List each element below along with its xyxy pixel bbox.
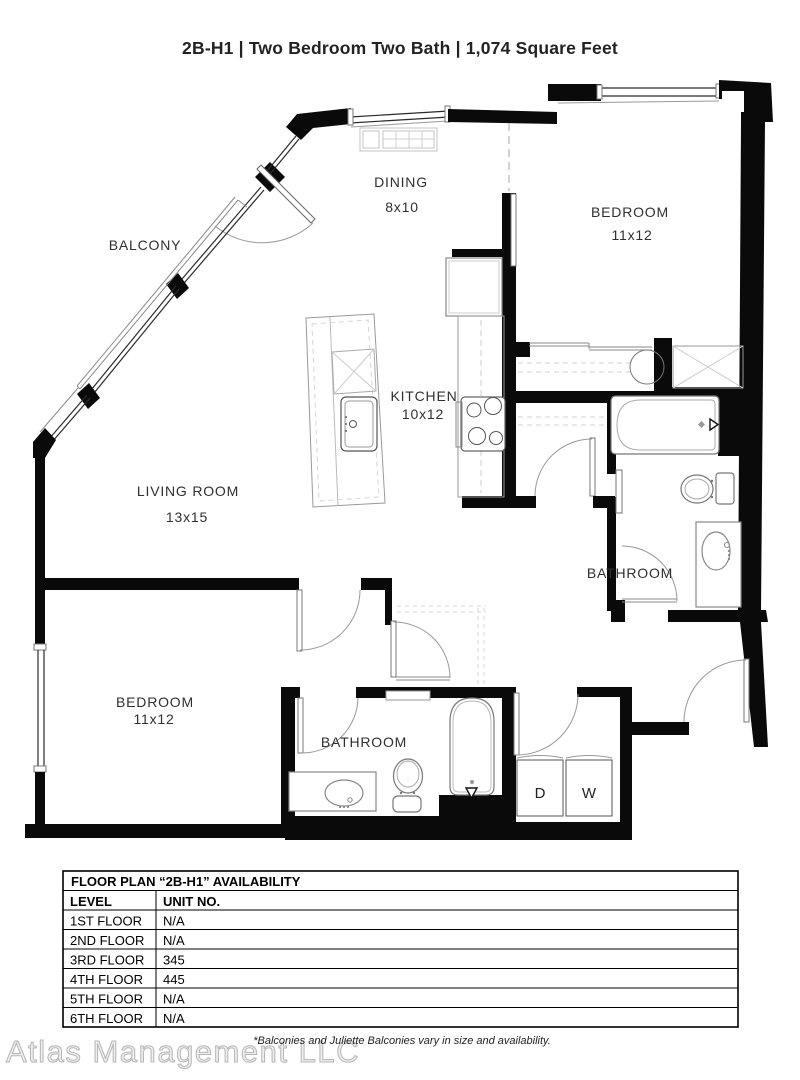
svg-text:2B-H1 | Two Bedroom Two Bath |: 2B-H1 | Two Bedroom Two Bath | 1,074 Squ… — [182, 38, 618, 58]
svg-text:10x12: 10x12 — [402, 406, 444, 422]
svg-text:N/A: N/A — [163, 992, 185, 1007]
svg-text:11x12: 11x12 — [133, 711, 174, 727]
svg-text:BATHROOM: BATHROOM — [587, 565, 673, 581]
svg-text:N/A: N/A — [163, 1011, 185, 1026]
svg-text:FLOOR PLAN “2B-H1” AVAILABILIT: FLOOR PLAN “2B-H1” AVAILABILITY — [71, 874, 301, 889]
svg-text:6TH FLOOR: 6TH FLOOR — [70, 1011, 143, 1026]
svg-text:13x15: 13x15 — [166, 509, 208, 525]
svg-text:KITCHEN: KITCHEN — [390, 388, 457, 404]
svg-text:3RD FLOOR: 3RD FLOOR — [70, 953, 144, 968]
svg-text:*Balconies and Juliette Balcon: *Balconies and Juliette Balconies vary i… — [253, 1035, 551, 1047]
svg-text:LEVEL: LEVEL — [70, 894, 112, 909]
svg-text:1ST FLOOR: 1ST FLOOR — [70, 914, 142, 929]
svg-text:D: D — [535, 785, 546, 802]
svg-text:N/A: N/A — [163, 914, 185, 929]
svg-text:LIVING ROOM: LIVING ROOM — [137, 483, 239, 499]
svg-text:DINING: DINING — [374, 174, 428, 190]
svg-text:11x12: 11x12 — [611, 227, 652, 243]
svg-text:5TH FLOOR: 5TH FLOOR — [70, 992, 143, 1007]
svg-text:W: W — [582, 785, 597, 802]
svg-text:445: 445 — [163, 972, 185, 987]
svg-text:2ND FLOOR: 2ND FLOOR — [70, 933, 144, 948]
svg-text:BEDROOM: BEDROOM — [116, 694, 194, 710]
svg-text:BATHROOM: BATHROOM — [321, 734, 407, 750]
svg-text:345: 345 — [163, 953, 185, 968]
svg-text:BALCONY: BALCONY — [109, 237, 182, 253]
svg-text:UNIT NO.: UNIT NO. — [163, 894, 220, 909]
svg-text:BEDROOM: BEDROOM — [591, 204, 669, 220]
svg-text:N/A: N/A — [163, 933, 185, 948]
svg-text:8x10: 8x10 — [385, 199, 419, 215]
svg-text:4TH FLOOR: 4TH FLOOR — [70, 972, 143, 987]
